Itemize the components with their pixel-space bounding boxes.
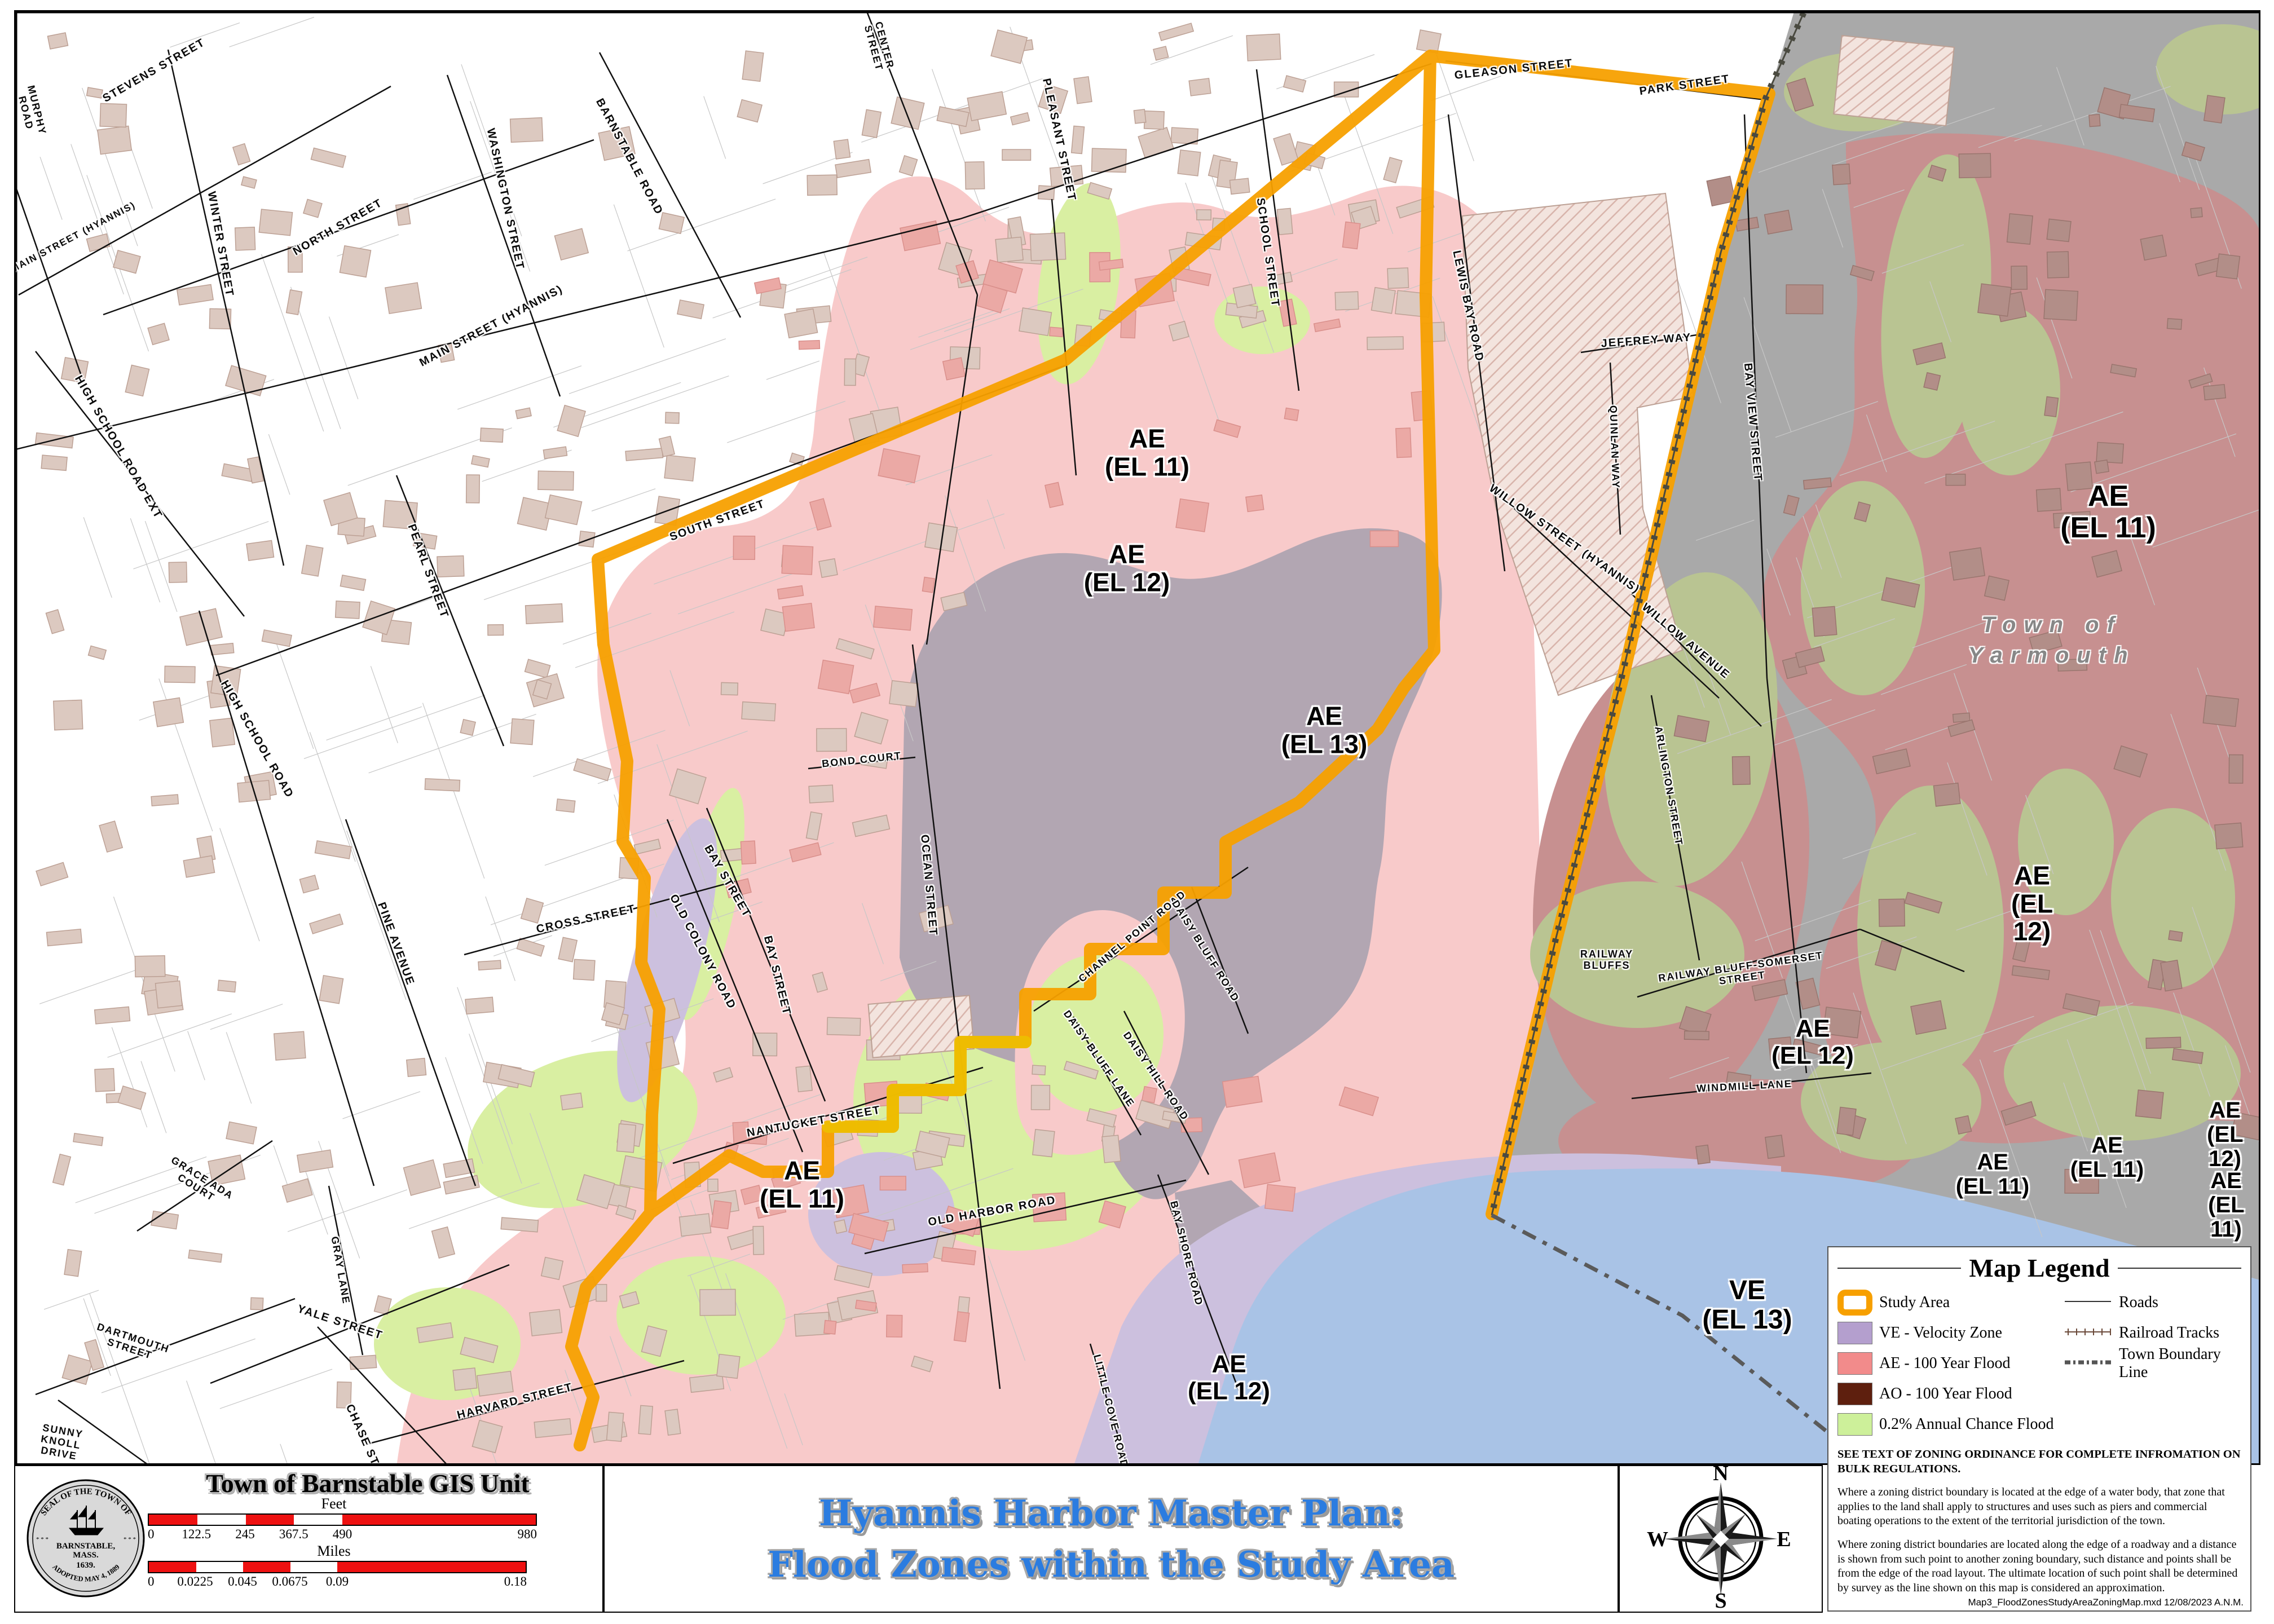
legend-footer: Map3_FloodZonesStudyAreaZoningMap.mxd 12… <box>1968 1597 2244 1608</box>
compass-rose: N S E W <box>1620 1466 1822 1612</box>
legend-paragraph-2: Where zoning district boundaries are loc… <box>1837 1538 2241 1595</box>
map-title-line1: Hyannis Harbor Master Plan: <box>819 1488 1403 1539</box>
legend-item-label: AO - 100 Year Flood <box>1879 1385 2012 1403</box>
flood-zone-label: AE (EL 11) <box>1105 425 1189 480</box>
legend-item-ve: VE - Velocity Zone <box>1837 1318 2064 1348</box>
svg-text:MASS.: MASS. <box>73 1551 99 1560</box>
legend-paragraph-1: Where a zoning district boundary is loca… <box>1837 1485 2241 1529</box>
compass-w: W <box>1647 1528 1668 1551</box>
legend-item-study: Study Area <box>1837 1287 2064 1318</box>
legend-swatch-study <box>1837 1290 1872 1316</box>
flood-zone-label: AE (EL 12) <box>1188 1351 1270 1404</box>
compass-n: N <box>1713 1466 1728 1485</box>
legend-glyph-railroad <box>2064 1324 2112 1342</box>
legend-item-ao: AO - 100 Year Flood <box>1837 1379 2064 1409</box>
flood-zone-label: AE (EL 11) <box>1956 1150 2029 1199</box>
scale-tick-label: 367.5 <box>279 1527 309 1542</box>
scale-bar-segment <box>149 1562 196 1572</box>
svg-text:1639.: 1639. <box>76 1561 95 1570</box>
street-label: SUNNY KNOLL DRIVE <box>38 1422 84 1462</box>
town-seal: SEAL OF THE TOWN OF ADOPTED MAY 4, 1889 … <box>25 1476 147 1600</box>
flood-zone-label: AE (EL 11) <box>760 1157 844 1212</box>
scale-bar-segment <box>294 1515 342 1525</box>
legend-line-items: RoadsRailroad TracksTown Boundary Line <box>2064 1287 2241 1440</box>
feet-scale-caption: Feet <box>148 1495 520 1512</box>
legend-item-label: Town Boundary Line <box>2119 1345 2241 1382</box>
legend-item-ae: AE - 100 Year Flood <box>1837 1348 2064 1379</box>
legend-item-boundary: Town Boundary Line <box>2064 1348 2241 1379</box>
flood-zone-label: AE (EL 13) <box>1281 702 1368 758</box>
miles-scale-caption: Miles <box>148 1543 520 1560</box>
scale-bar-segment <box>149 1515 197 1525</box>
scale-bar-segment <box>290 1562 338 1572</box>
svg-text:BARNSTABLE,: BARNSTABLE, <box>56 1542 116 1551</box>
map-title-line2: Flood Zones within the Study Area <box>768 1539 1455 1590</box>
legend-item-label: AE - 100 Year Flood <box>1879 1354 2011 1373</box>
legend-item-label: Railroad Tracks <box>2119 1324 2219 1342</box>
gis-unit-panel: SEAL OF THE TOWN OF ADOPTED MAY 4, 1889 … <box>14 1465 603 1613</box>
compass-e: E <box>1777 1528 1791 1551</box>
scale-bar-segment <box>337 1562 526 1572</box>
miles-scale-ticks: 00.02250.0450.06750.090.18 <box>148 1574 527 1589</box>
legend-swatch-ve <box>1837 1322 1872 1344</box>
miles-scale-bar <box>148 1561 527 1573</box>
legend-title: Map Legend <box>1837 1253 2241 1283</box>
gis-unit-title: Town of Barnstable GIS Unit <box>136 1468 599 1498</box>
scale-tick-label: 0.0225 <box>177 1574 213 1589</box>
legend-item-annual02: 0.2% Annual Chance Flood <box>1837 1409 2064 1440</box>
legend-item-railroad: Railroad Tracks <box>2064 1318 2241 1348</box>
legend-swatch-ao <box>1837 1383 1872 1405</box>
compass-s: S <box>1715 1589 1726 1612</box>
feet-scale-bar <box>148 1513 537 1526</box>
scale-bar-segment <box>197 1515 246 1525</box>
feet-scale-ticks: 0122.5245367.5490980 <box>148 1527 537 1542</box>
scale-bar-segment <box>196 1562 244 1572</box>
scale-tick-label: 0.09 <box>326 1574 349 1589</box>
scale-tick-label: 0.045 <box>228 1574 257 1589</box>
svg-text:* * *: * * * <box>124 1536 136 1543</box>
scale-tick-label: 122.5 <box>182 1527 211 1542</box>
flood-zone-label: AE (EL 11) <box>2060 480 2156 544</box>
street-label: QUINLAN WAY <box>1607 405 1621 489</box>
flood-zone-label: VE (EL 13) <box>1702 1276 1792 1335</box>
flood-zone-label: AE (EL 12) <box>1084 540 1170 596</box>
legend-swatch-ae <box>1837 1352 1872 1375</box>
flood-zone-label: AE (EL 12) <box>1771 1015 1854 1069</box>
scale-tick-label: 980 <box>518 1527 537 1542</box>
legend-note: SEE TEXT OF ZONING ORDINANCE FOR COMPLET… <box>1837 1448 2241 1476</box>
legend-zone-items: Study AreaVE - Velocity ZoneAE - 100 Yea… <box>1837 1287 2064 1440</box>
town-of-yarmouth-label: Town of Yarmouth <box>1894 610 2210 670</box>
street-label: RAILWAY BLUFFS <box>1580 949 1633 972</box>
compass-star <box>1664 1482 1777 1595</box>
map-title-panel: Hyannis Harbor Master Plan: Flood Zones … <box>603 1465 1619 1613</box>
scale-tick-label: 0 <box>148 1574 155 1589</box>
legend-item-label: Roads <box>2119 1294 2158 1312</box>
scale-tick-label: 0 <box>148 1527 155 1542</box>
legend-glyph-road <box>2064 1294 2112 1312</box>
scale-tick-label: 490 <box>333 1527 352 1542</box>
flood-zone-label: AE (EL 11) <box>2208 1169 2244 1242</box>
compass-panel: N S E W <box>1619 1465 1823 1613</box>
flood-zone-map-document: MURPHY ROADSTEVENS STREETWINTER STREETNO… <box>0 0 2274 1624</box>
flood-zone-label: AE (EL 12) <box>2011 862 2053 946</box>
legend-item-label: VE - Velocity Zone <box>1879 1324 2002 1342</box>
scale-tick-label: 0.0675 <box>272 1574 307 1589</box>
legend-item-label: 0.2% Annual Chance Flood <box>1879 1415 2054 1433</box>
scale-tick-label: 0.18 <box>504 1574 527 1589</box>
legend-glyph-boundary <box>2064 1354 2112 1373</box>
scale-tick-label: 245 <box>235 1527 255 1542</box>
map-legend: Map Legend Study AreaVE - Velocity ZoneA… <box>1827 1246 2251 1612</box>
flood-zone-label: AE (EL 12) <box>2207 1098 2243 1172</box>
flood-zone-label: AE (EL 11) <box>2070 1133 2144 1182</box>
svg-text:* * *: * * * <box>36 1536 49 1543</box>
scale-bar-segment <box>243 1562 290 1572</box>
legend-swatch-annual02 <box>1837 1413 1872 1436</box>
legend-item-road: Roads <box>2064 1287 2241 1318</box>
scale-bar-segment <box>246 1515 294 1525</box>
scale-bar-segment <box>342 1515 536 1525</box>
legend-item-label: Study Area <box>1879 1294 1950 1312</box>
